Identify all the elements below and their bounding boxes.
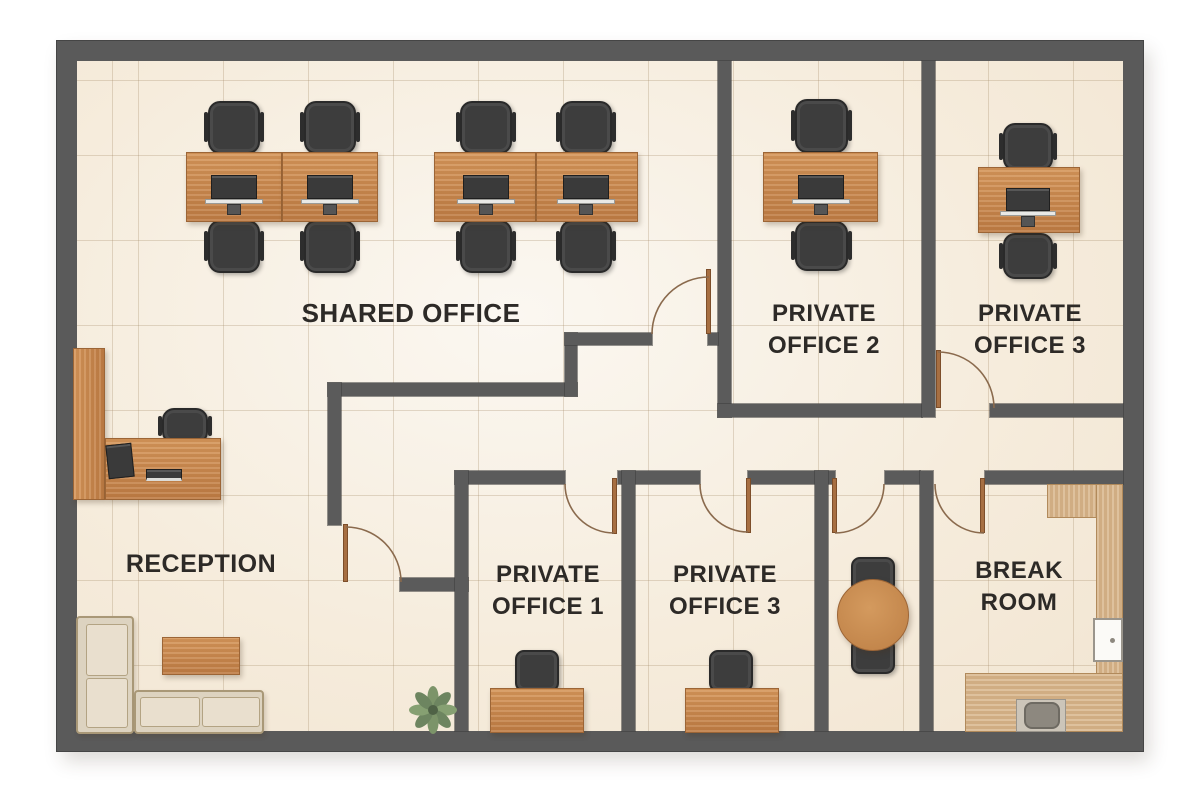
sofa — [76, 616, 134, 734]
monitor — [798, 175, 844, 199]
room-label-private-office-3-bottom: PRIVATE OFFICE 3 — [669, 559, 781, 623]
office-chair — [304, 101, 356, 154]
fridge — [1093, 618, 1123, 662]
monitor — [563, 175, 609, 199]
monitor-stand — [479, 204, 493, 215]
door-leaf — [706, 269, 711, 334]
wall — [328, 383, 341, 525]
office-floor-plan: SHARED OFFICE PRIVATE OFFICE 2 PRIVATE O… — [0, 0, 1200, 800]
office-chair — [208, 101, 260, 154]
room-label-line: BREAK — [975, 555, 1063, 587]
door-leaf — [612, 478, 617, 534]
monitor — [211, 175, 257, 199]
monitor — [105, 443, 134, 480]
door-leaf — [343, 524, 348, 582]
monitor — [463, 175, 509, 199]
monitor-stand — [814, 204, 828, 215]
room-label-shared-office: SHARED OFFICE — [302, 297, 521, 329]
sofa-cushion — [140, 697, 200, 727]
door-leaf — [746, 478, 751, 533]
room-label-line: ROOM — [975, 587, 1063, 619]
office-chair — [460, 101, 512, 154]
wall — [990, 404, 1123, 417]
room-label-break-room: BREAK ROOM — [975, 555, 1063, 619]
room-label-line: OFFICE 2 — [768, 330, 880, 362]
room-label-private-office-3-top: PRIVATE OFFICE 3 — [974, 298, 1086, 362]
room-label-line: PRIVATE — [669, 559, 781, 591]
desk — [685, 688, 779, 733]
office-chair — [795, 99, 848, 153]
desk — [490, 688, 584, 733]
room-label-line: PRIVATE — [974, 298, 1086, 330]
reception-desk — [73, 348, 105, 500]
room-label-line: OFFICE 3 — [669, 591, 781, 623]
door-leaf — [936, 350, 941, 408]
coffee-table — [162, 637, 240, 675]
office-chair — [515, 650, 559, 692]
wall — [920, 471, 933, 731]
monitor-stand — [227, 204, 241, 215]
plant-icon — [409, 686, 457, 734]
office-chair — [304, 220, 356, 273]
round-table — [837, 579, 909, 651]
monitor-stand — [1021, 216, 1035, 227]
monitor-stand — [579, 204, 593, 215]
sofa-cushion — [86, 678, 128, 728]
office-chair — [560, 101, 612, 154]
room-label-line: PRIVATE — [768, 298, 880, 330]
wall — [328, 383, 577, 396]
sofa-cushion — [202, 697, 260, 727]
room-label-line: OFFICE 3 — [974, 330, 1086, 362]
wall — [708, 333, 718, 345]
room-label-reception: RECEPTION — [126, 548, 276, 580]
monitor — [307, 175, 353, 199]
wall — [885, 471, 920, 484]
keyboard-tray — [146, 469, 182, 481]
door-leaf — [980, 478, 985, 533]
office-chair — [460, 220, 512, 273]
wall — [565, 333, 652, 345]
monitor — [1006, 188, 1050, 211]
room-label-private-office-1: PRIVATE OFFICE 1 — [492, 559, 604, 623]
office-chair — [1003, 233, 1053, 279]
sofa — [134, 690, 264, 734]
office-chair — [208, 220, 260, 273]
monitor-stand — [323, 204, 337, 215]
office-chair — [1003, 123, 1053, 171]
wall — [815, 471, 828, 731]
sofa-cushion — [86, 624, 128, 676]
wall — [455, 471, 565, 484]
sink-basin — [1024, 702, 1060, 729]
wall — [718, 61, 731, 417]
door-leaf — [832, 478, 837, 533]
room-label-private-office-2: PRIVATE OFFICE 2 — [768, 298, 880, 362]
office-chair — [709, 650, 753, 692]
wall — [718, 404, 922, 417]
wall — [985, 471, 1123, 484]
office-chair — [560, 220, 612, 273]
room-label-line: OFFICE 1 — [492, 591, 604, 623]
wall — [922, 61, 935, 417]
room-label-line: PRIVATE — [492, 559, 604, 591]
wall — [622, 471, 635, 731]
office-chair — [795, 221, 848, 271]
